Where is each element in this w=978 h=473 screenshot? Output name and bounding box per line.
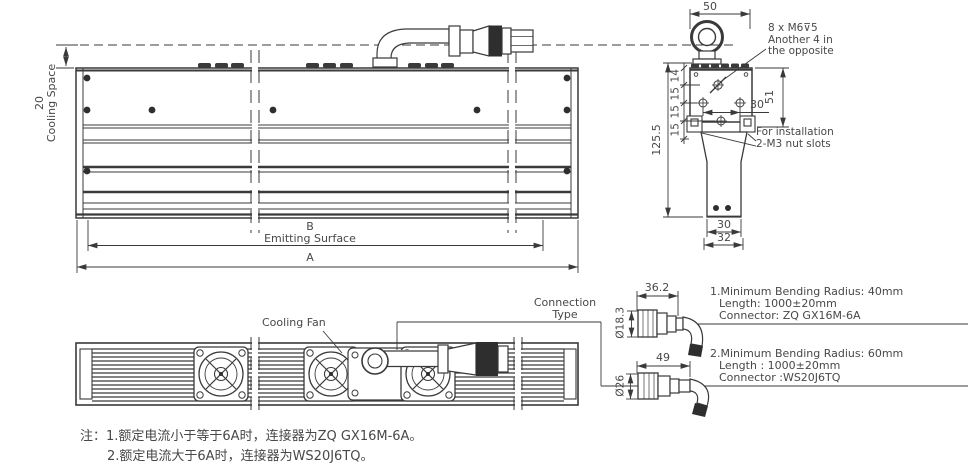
- connector-detail-2: [626, 361, 709, 417]
- overall-length-dim-label: A: [285, 252, 335, 264]
- cooling-space-label: 20 Cooling Space: [34, 43, 58, 163]
- connector-option-2-note: 2.Minimum Bending Radius: 60mm Length : …: [710, 348, 903, 384]
- dim-125-5-label: 125.5: [651, 120, 663, 160]
- dim-15c-label: 15: [670, 118, 682, 142]
- dim-bottom-32-label: 32: [706, 232, 742, 244]
- eye-ring: [692, 22, 723, 65]
- thread-note: 8 x M6⊽5 Another 4 in the opposite: [768, 23, 834, 58]
- note-line-2: 2.额定电流大于6A时，连接器为WS20J6TQ。: [107, 449, 374, 464]
- connector-option-1-note: 1.Minimum Bending Radius: 40mm Length: 1…: [710, 286, 903, 322]
- connection-type-label: Connection Type: [520, 297, 610, 321]
- emitting-surface-dim-label: B Emitting Surface: [210, 221, 410, 245]
- dim-51-label: 51: [764, 85, 776, 109]
- dia-26-label: Ø26: [615, 368, 627, 404]
- connector-detail-1: [627, 291, 703, 357]
- dia-18-3-label: Ø18.3: [615, 300, 627, 346]
- install-note: For installation 2-M3 nut slots: [756, 127, 834, 150]
- side-lower-body: [701, 132, 747, 217]
- note-line-1: 注：1.额定电流小于等于6A时，连接器为ZQ GX16M-6A。: [80, 429, 422, 444]
- cooling-fan-label: Cooling Fan: [262, 317, 326, 329]
- technical-drawing-svg: [0, 0, 978, 473]
- dim-bottom-30-label: 30: [706, 219, 742, 231]
- dim-49-label: 49: [643, 352, 683, 364]
- technical-drawing-page: 20 Cooling Space B Emitting Surface A 50…: [0, 0, 978, 473]
- top-mounting-tabs: [198, 63, 454, 68]
- side-body: [690, 68, 752, 122]
- cooling-fan-1: [194, 347, 248, 401]
- dim-50-label: 50: [696, 1, 724, 13]
- dim-36-2-label: 36.2: [637, 282, 677, 294]
